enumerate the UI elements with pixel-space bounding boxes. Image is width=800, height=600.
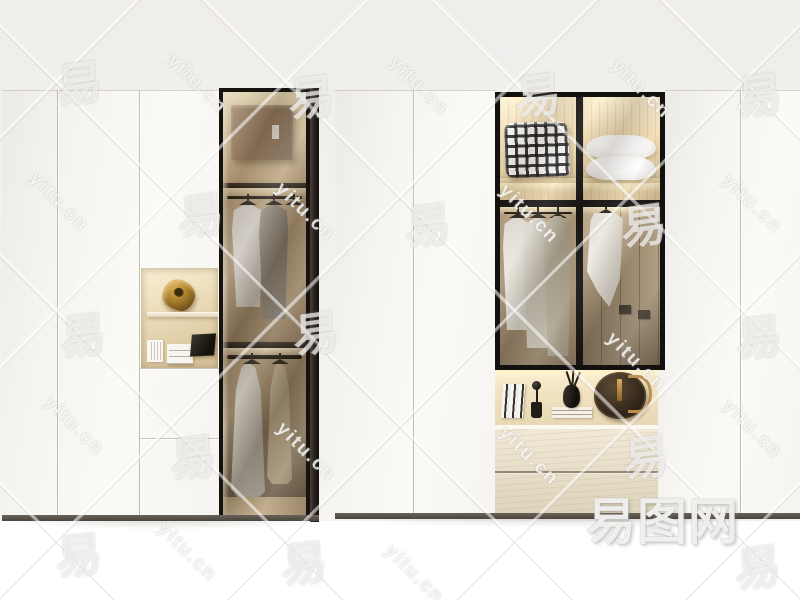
glass-reflection xyxy=(500,97,660,365)
drawer-seam xyxy=(140,368,219,369)
door-seam xyxy=(413,90,414,513)
display-niche xyxy=(141,268,218,368)
bag-strap xyxy=(628,375,652,413)
white-book-stack xyxy=(552,407,592,418)
upright-books xyxy=(501,384,525,418)
dark-tablet xyxy=(190,333,216,356)
gold-abstract-sculpture xyxy=(159,276,199,314)
cabinet-side-panel xyxy=(310,88,319,522)
open-shelf xyxy=(495,370,658,425)
floor xyxy=(0,521,800,600)
bag-clasp xyxy=(617,379,622,401)
black-sphere-ornament xyxy=(532,381,541,390)
ornament-stem xyxy=(536,388,538,403)
glass-reflection xyxy=(223,92,306,517)
black-vase xyxy=(563,385,580,408)
glass-display-column xyxy=(219,88,310,521)
door-seam xyxy=(740,90,741,513)
plinth xyxy=(335,513,800,519)
door-seam xyxy=(139,90,140,515)
right-wardrobe-right-doors xyxy=(665,90,800,513)
door-seam xyxy=(57,90,58,515)
miniature-white-chair xyxy=(147,340,163,362)
plinth xyxy=(2,515,319,521)
drawer-seam xyxy=(495,471,658,473)
drawer-seam xyxy=(140,438,219,439)
drawer-top-edge xyxy=(495,425,658,429)
product-render-scene: yitu.cn yitu.cn yitu.cn yitu.cn yitu.cn … xyxy=(0,0,800,600)
glass-display-section xyxy=(495,92,665,370)
miniature-drawer-chest xyxy=(167,344,193,364)
sculpture-hole xyxy=(173,286,185,298)
right-wardrobe-left-doors xyxy=(335,90,495,513)
niche-shelf xyxy=(147,312,218,317)
ornament-cup xyxy=(531,402,542,418)
drawer-unit xyxy=(495,425,658,513)
